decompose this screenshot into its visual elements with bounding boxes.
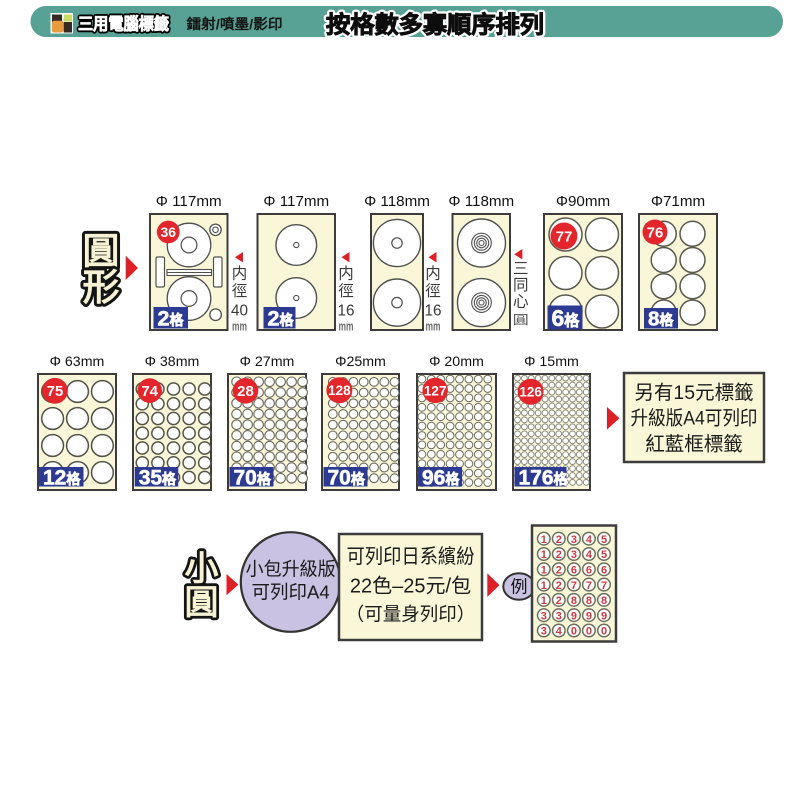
- svg-text:（可量身列印）: （可量身列印）: [346, 604, 476, 625]
- svg-text:1: 1: [541, 534, 547, 546]
- svg-text:1: 1: [541, 580, 547, 592]
- svg-text:8: 8: [601, 595, 607, 607]
- svg-text:Φ 117mm: Φ 117mm: [263, 193, 329, 210]
- svg-text:可列印日系繽紛: 可列印日系繽紛: [347, 545, 475, 568]
- svg-text:8: 8: [571, 595, 577, 607]
- svg-text:127: 127: [424, 383, 447, 398]
- svg-text:Φ 15mm: Φ 15mm: [524, 354, 579, 370]
- svg-text:128: 128: [328, 383, 351, 398]
- svg-text:内: 内: [232, 265, 248, 283]
- svg-text:小: 小: [185, 550, 219, 588]
- svg-text:Φ 63mm: Φ 63mm: [50, 354, 105, 370]
- svg-text:mm: mm: [232, 319, 247, 334]
- svg-text:三: 三: [513, 261, 529, 278]
- svg-text:8: 8: [586, 595, 592, 607]
- svg-text:0: 0: [571, 626, 577, 638]
- svg-text:Φ 27mm: Φ 27mm: [240, 354, 295, 370]
- svg-text:3: 3: [571, 534, 577, 546]
- svg-text:鐳射/噴墨/影印: 鐳射/噴墨/影印: [187, 16, 283, 32]
- svg-text:mm: mm: [426, 319, 441, 334]
- svg-text:Φ71mm: Φ71mm: [651, 193, 705, 210]
- svg-text:4: 4: [586, 534, 593, 546]
- svg-text:mm: mm: [339, 319, 354, 334]
- svg-text:2: 2: [556, 549, 562, 561]
- svg-text:徑: 徑: [338, 282, 354, 300]
- svg-text:3: 3: [541, 626, 547, 638]
- svg-text:小包升級版: 小包升級版: [246, 559, 336, 580]
- svg-text:126: 126: [519, 385, 542, 400]
- svg-text:Φ 117mm: Φ 117mm: [156, 193, 222, 210]
- svg-text:1: 1: [541, 549, 547, 561]
- svg-text:22色–25元/包: 22色–25元/包: [350, 575, 471, 598]
- svg-text:16: 16: [425, 303, 442, 320]
- svg-text:6: 6: [571, 565, 577, 577]
- svg-text:9: 9: [601, 610, 607, 622]
- svg-text:圓: 圓: [83, 231, 120, 272]
- svg-text:3: 3: [571, 549, 577, 561]
- svg-text:Φ 38mm: Φ 38mm: [145, 354, 200, 370]
- svg-text:三用電腦標籤: 三用電腦標籤: [78, 14, 169, 34]
- svg-text:Φ90mm: Φ90mm: [556, 193, 610, 210]
- svg-text:升級版A4可列印: 升級版A4可列印: [631, 408, 758, 430]
- svg-text:内: 内: [425, 265, 441, 283]
- svg-text:7: 7: [586, 580, 592, 592]
- svg-text:6: 6: [601, 565, 607, 577]
- svg-text:7: 7: [571, 580, 577, 592]
- svg-text:形: 形: [83, 267, 120, 308]
- svg-text:40: 40: [231, 303, 248, 320]
- svg-text:另有15元標籤: 另有15元標籤: [634, 382, 753, 404]
- svg-text:75: 75: [47, 383, 64, 400]
- svg-text:0: 0: [586, 626, 592, 638]
- svg-text:9: 9: [586, 610, 592, 622]
- svg-text:28: 28: [237, 383, 254, 400]
- svg-text:Φ 118mm: Φ 118mm: [448, 193, 514, 210]
- svg-text:3: 3: [541, 610, 547, 622]
- svg-text:6: 6: [586, 565, 592, 577]
- svg-text:圓: 圓: [185, 584, 219, 622]
- svg-text:紅藍框標籤: 紅藍框標籤: [645, 434, 743, 456]
- svg-text:徑: 徑: [232, 282, 248, 300]
- svg-text:可列印A4: 可列印A4: [252, 582, 330, 603]
- svg-text:36: 36: [161, 224, 177, 240]
- svg-text:7: 7: [601, 580, 607, 592]
- svg-text:Φ25mm: Φ25mm: [335, 354, 386, 370]
- svg-text:1: 1: [541, 565, 547, 577]
- svg-text:徑: 徑: [425, 282, 441, 300]
- svg-text:1: 1: [541, 595, 547, 607]
- svg-text:5: 5: [601, 534, 607, 546]
- svg-text:2: 2: [556, 595, 562, 607]
- svg-text:5: 5: [601, 549, 607, 561]
- svg-text:Φ 20mm: Φ 20mm: [429, 354, 484, 370]
- svg-text:3: 3: [556, 610, 562, 622]
- svg-text:内: 内: [338, 265, 354, 283]
- svg-text:4: 4: [556, 626, 563, 638]
- svg-text:16: 16: [338, 303, 355, 320]
- svg-text:圓: 圓: [513, 313, 529, 327]
- svg-text:76: 76: [647, 224, 664, 241]
- svg-text:同: 同: [513, 277, 529, 294]
- svg-text:2: 2: [556, 534, 562, 546]
- svg-text:77: 77: [556, 228, 573, 245]
- svg-text:0: 0: [601, 626, 607, 638]
- svg-text:例: 例: [511, 578, 528, 597]
- svg-text:2: 2: [556, 580, 562, 592]
- svg-text:心: 心: [513, 293, 529, 311]
- svg-text:4: 4: [586, 549, 593, 561]
- svg-text:74: 74: [141, 383, 158, 400]
- svg-text:2: 2: [556, 565, 562, 577]
- svg-text:按格數多寡順序排列: 按格數多寡順序排列: [326, 11, 544, 38]
- svg-text:9: 9: [571, 610, 577, 622]
- svg-text:Φ 118mm: Φ 118mm: [364, 193, 430, 210]
